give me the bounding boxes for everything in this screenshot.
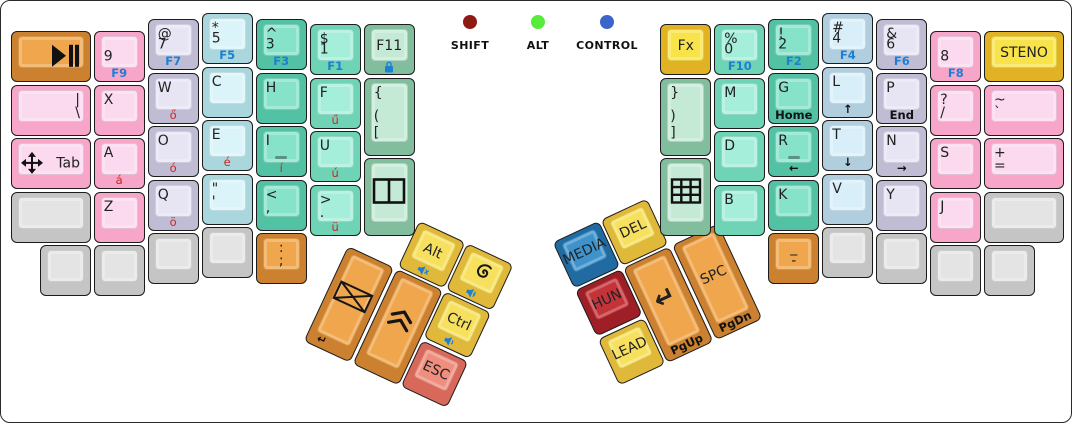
key-numpad[interactable]: [660, 158, 711, 237]
key-0-legend-ml: 0: [724, 42, 733, 56]
key-z[interactable]: Z: [94, 192, 145, 243]
key-b-legend-tl: B: [724, 193, 734, 207]
key-s[interactable]: S: [930, 138, 981, 189]
key-close-brackets[interactable]: })]: [660, 78, 711, 157]
key-x-legend-tl: X: [104, 93, 114, 107]
control-indicator: CONTROL: [557, 15, 657, 52]
key-greater-period-front-legend: ü: [311, 221, 360, 235]
key-greater-period-legend-bl: .: [320, 206, 324, 220]
key-t-legend-tl: T: [832, 128, 841, 142]
key-open-brackets-legend-tl: {: [374, 86, 383, 100]
keycap-face: [18, 197, 84, 229]
key-open-brackets-legend-ml: (: [374, 109, 379, 123]
key-i-legend-tl: I: [266, 134, 270, 148]
key-close-brackets-legend-tl: }: [670, 86, 679, 100]
key-2[interactable]: !2F2: [768, 19, 819, 70]
key-b[interactable]: B: [714, 185, 765, 236]
grid-icon: [670, 177, 702, 204]
keycap-face: [155, 238, 192, 270]
key-w-front-legend: ő: [149, 109, 198, 123]
key-5-front-legend: F5: [203, 49, 252, 63]
key-g-legend-tl: G: [778, 81, 789, 95]
key-blank-r5[interactable]: [984, 245, 1035, 296]
key-9-legend-ml: 9: [104, 49, 113, 63]
key-z-legend-tl: Z: [104, 200, 114, 214]
key-m-legend-tl: M: [724, 86, 736, 100]
keycap-face: [18, 90, 84, 122]
key-tab-legend-mr: Tab: [56, 156, 80, 170]
key-h-legend-tl: H: [266, 81, 277, 95]
key-greater-period[interactable]: >.ü: [310, 185, 361, 236]
keycap-face: [829, 232, 866, 264]
key-blank-r3[interactable]: [930, 245, 981, 296]
key-open-brackets-legend-bl: [: [374, 126, 379, 140]
key-7[interactable]: @7F7: [148, 19, 199, 70]
key-5[interactable]: *5F5: [202, 13, 253, 64]
keyboard-case: ↵AltCtrlESC↵PgUpSPCPgDnMEDIADELHUNLEAD|\…: [0, 0, 1072, 423]
key-d-legend-tl: D: [724, 139, 735, 153]
key-m[interactable]: M: [714, 78, 765, 129]
key-x[interactable]: X: [94, 85, 145, 136]
key-r-legend-tl: R: [778, 134, 788, 148]
key-c[interactable]: C: [202, 67, 253, 118]
key-close-brackets-legend-ml: ): [670, 109, 675, 123]
key-f-legend-tl: F: [320, 86, 328, 100]
key-k[interactable]: K: [768, 180, 819, 231]
key-play-pause[interactable]: [11, 31, 91, 82]
keycap-face: [101, 250, 138, 282]
move-icon: [21, 151, 43, 173]
keycap-face: [991, 250, 1028, 282]
key-u[interactable]: Uú: [310, 131, 361, 182]
key-i-front-legend: í: [257, 162, 306, 176]
control-indicator-label: CONTROL: [576, 39, 638, 52]
key-k-legend-tl: K: [778, 188, 787, 202]
key-h[interactable]: H: [256, 73, 307, 124]
key-w[interactable]: Wő: [148, 73, 199, 124]
key-1-front-legend: F1: [311, 60, 360, 74]
key-1[interactable]: $1F1: [310, 24, 361, 75]
key-less-comma-legend-bl: ,: [266, 201, 270, 215]
key-fx-legend-ce: Fx: [678, 39, 694, 53]
keycap-face: [883, 238, 920, 270]
key-t-front-legend: ↓: [823, 156, 872, 170]
alt-indicator-dot: [531, 15, 545, 29]
key-g[interactable]: GHome: [768, 73, 819, 124]
homing-bar: [788, 156, 800, 159]
key-6-legend-ml: 6: [886, 37, 895, 51]
key-a[interactable]: Aá: [94, 138, 145, 189]
key-8-legend-ml: 8: [940, 49, 949, 63]
key-blank-r1[interactable]: [822, 227, 873, 278]
key-e-legend-tl: E: [212, 128, 221, 142]
play-pause-icon: [51, 43, 79, 67]
key-tab[interactable]: Tab: [11, 138, 91, 189]
key-1-legend-ml: 1: [320, 42, 329, 56]
key-t[interactable]: T↓: [822, 120, 873, 171]
key-u-front-legend: ú: [311, 167, 360, 181]
key-4-front-legend: F4: [823, 49, 872, 63]
key-split-window[interactable]: [364, 158, 415, 237]
key-less-comma[interactable]: <,: [256, 180, 307, 231]
key-5-legend-ml: 5: [212, 31, 221, 45]
shift-indicator-dot: [463, 15, 477, 29]
key-d[interactable]: D: [714, 131, 765, 182]
alt-indicator-label: ALT: [527, 39, 549, 52]
key-r[interactable]: R←: [768, 126, 819, 177]
key-f11[interactable]: F11: [364, 24, 415, 75]
key-tilde-backtick-legend-bl: `: [994, 106, 1001, 120]
key-0[interactable]: %0F10: [714, 24, 765, 75]
key-pipe-backslash[interactable]: |\: [11, 85, 91, 136]
key-u-legend-tl: U: [320, 139, 330, 153]
key-n[interactable]: N→: [876, 126, 927, 177]
key-2-front-legend: F2: [769, 55, 818, 69]
key-a-front-legend: á: [95, 174, 144, 188]
key-blank-r2[interactable]: [876, 233, 927, 284]
key-q[interactable]: Qö: [148, 180, 199, 231]
key-colon-semicolon-legend-bc: ;: [279, 254, 284, 268]
key-close-brackets-legend-bl: ]: [670, 126, 675, 140]
key-blank-l2[interactable]: [40, 245, 91, 296]
key-0-front-legend: F10: [715, 60, 764, 74]
key-f[interactable]: Fű: [310, 78, 361, 129]
shift-indicator-label: SHIFT: [451, 39, 489, 52]
key-n-legend-tl: N: [886, 134, 896, 148]
key-p[interactable]: PEnd: [876, 73, 927, 124]
key-steno-legend-ce: STENO: [1000, 46, 1048, 60]
key-tilde-backtick[interactable]: ~`: [984, 85, 1064, 136]
key-l-front-legend: ↑: [823, 103, 872, 117]
key-l-legend-tl: L: [832, 75, 840, 89]
key-blank-r4[interactable]: [984, 192, 1064, 243]
key-question-slash-legend-bl: /: [940, 106, 945, 120]
key-a-legend-tl: A: [104, 146, 114, 160]
key-3-front-legend: F3: [257, 55, 306, 69]
key-l[interactable]: L↑: [822, 67, 873, 118]
key-g-front-legend: Home: [769, 109, 818, 123]
key-7-front-legend: F7: [149, 55, 198, 69]
key-2-legend-ml: 2: [778, 37, 787, 51]
key-p-legend-tl: P: [886, 81, 894, 95]
key-f11-legend-ce: F11: [376, 39, 402, 53]
key-steno[interactable]: STENO: [984, 31, 1064, 82]
key-blank-l1[interactable]: [11, 192, 91, 243]
key-y-legend-tl: Y: [886, 188, 895, 202]
keycap-face: [937, 250, 974, 282]
key-6[interactable]: &6F6: [876, 19, 927, 70]
key-underscore-dash[interactable]: _-: [768, 233, 819, 284]
lock-icon: [384, 61, 395, 73]
key-v-legend-tl: V: [832, 182, 842, 196]
key-w-legend-tl: W: [158, 81, 172, 95]
key-blank-l3[interactable]: [94, 245, 145, 296]
homing-bar: [275, 156, 287, 159]
key-j-legend-tl: J: [940, 200, 944, 214]
key-9-front-legend: F9: [95, 67, 144, 81]
key-plus-equals-legend-bl: =: [994, 159, 1006, 173]
key-quote-apostrophe[interactable]: "': [202, 174, 253, 225]
key-open-brackets[interactable]: {([: [364, 78, 415, 157]
key-4-legend-ml: 4: [832, 31, 841, 45]
key-underscore-dash-legend-bc: -: [791, 254, 796, 268]
key-q-legend-tl: Q: [158, 188, 169, 202]
keycap-face: [47, 250, 84, 282]
key-fx[interactable]: Fx: [660, 24, 711, 75]
key-colon-semicolon[interactable]: :;: [256, 233, 307, 284]
keycap-face: [991, 197, 1057, 229]
control-indicator-dot: [600, 15, 614, 29]
key-question-slash[interactable]: ?/: [930, 85, 981, 136]
key-r-front-legend: ←: [769, 162, 818, 176]
key-6-front-legend: F6: [877, 55, 926, 69]
key-8-front-legend: F8: [931, 67, 980, 81]
key-o[interactable]: Oó: [148, 126, 199, 177]
key-j[interactable]: J: [930, 192, 981, 243]
key-c-legend-tl: C: [212, 75, 222, 89]
key-3[interactable]: ^3F3: [256, 19, 307, 70]
key-pipe-backslash-legend-br: \: [75, 106, 80, 120]
key-7-legend-ml: 7: [158, 37, 167, 51]
key-p-front-legend: End: [877, 109, 926, 123]
key-9[interactable]: 9F9: [94, 31, 145, 82]
key-3-legend-ml: 3: [266, 37, 275, 51]
key-quote-apostrophe-legend-bl: ': [212, 195, 216, 209]
key-n-front-legend: →: [877, 162, 926, 176]
key-blank-l4[interactable]: [148, 233, 199, 284]
key-o-front-legend: ó: [149, 162, 198, 176]
key-s-legend-tl: S: [940, 146, 949, 160]
key-e[interactable]: Eé: [202, 120, 253, 171]
key-f-front-legend: ű: [311, 114, 360, 128]
keycap-face: [209, 232, 246, 264]
key-v[interactable]: V: [822, 174, 873, 225]
key-y[interactable]: Y: [876, 180, 927, 231]
key-plus-equals[interactable]: +=: [984, 138, 1064, 189]
key-i[interactable]: Ií: [256, 126, 307, 177]
split-window-icon: [372, 177, 406, 204]
key-o-legend-tl: O: [158, 134, 169, 148]
key-e-front-legend: é: [203, 156, 252, 170]
key-q-front-legend: ö: [149, 216, 198, 230]
key-blank-l5[interactable]: [202, 227, 253, 278]
key-8[interactable]: 8F8: [930, 31, 981, 82]
key-4[interactable]: #4F4: [822, 13, 873, 64]
